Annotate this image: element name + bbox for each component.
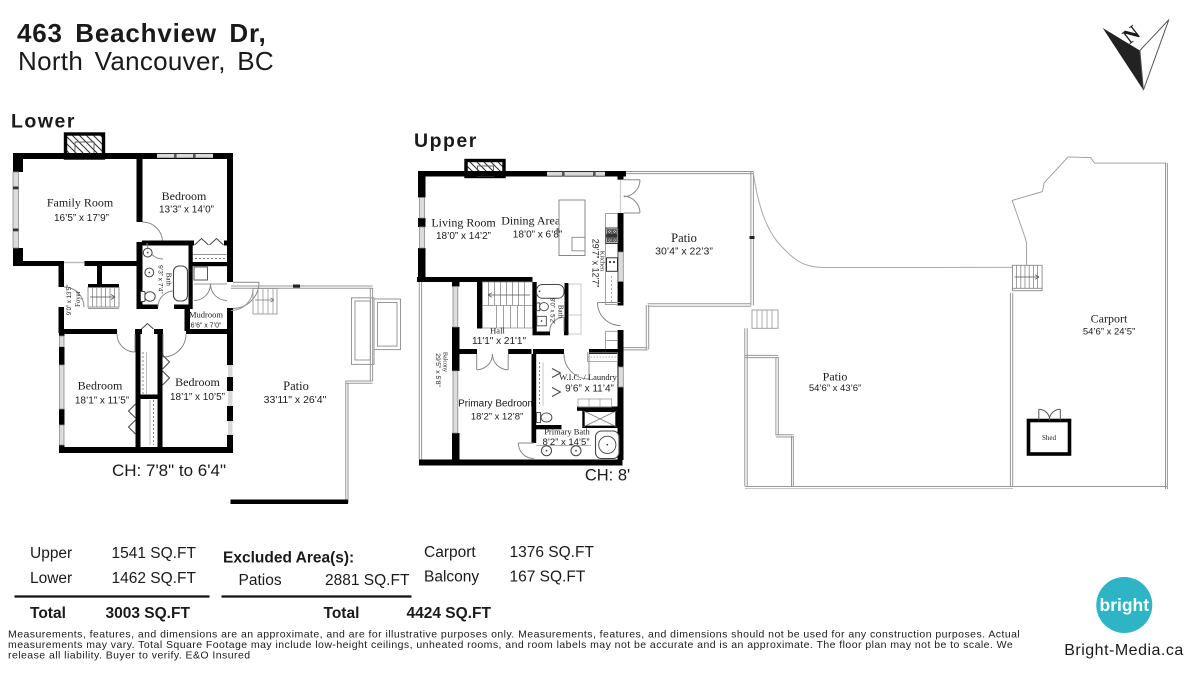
- svg-text:Bedroom: Bedroom: [78, 379, 123, 393]
- svg-text:Balcony: Balcony: [424, 569, 479, 586]
- svg-text:8’0” x 5’2”: 8’0” x 5’2”: [549, 298, 555, 324]
- svg-text:167 SQ.FT: 167 SQ.FT: [510, 569, 586, 586]
- svg-text:1462 SQ.FT: 1462 SQ.FT: [112, 570, 197, 587]
- svg-text:Upper: Upper: [414, 130, 478, 152]
- svg-text:CH: 7'8" to 6'4": CH: 7'8" to 6'4": [112, 461, 226, 480]
- svg-text:2881 SQ.FT: 2881 SQ.FT: [325, 572, 410, 589]
- svg-text:13’3” x 14’0”: 13’3” x 14’0”: [159, 205, 214, 216]
- svg-text:6’6” x 7’0”: 6’6” x 7’0”: [191, 323, 222, 330]
- svg-text:Kitchen: Kitchen: [599, 251, 606, 272]
- svg-text:Dining Area: Dining Area: [501, 214, 561, 228]
- svg-text:16’5” x 17’9”: 16’5” x 17’9”: [54, 213, 109, 224]
- svg-text:18’1” x 11’5”: 18’1” x 11’5”: [75, 396, 129, 407]
- svg-text:4424 SQ.FT: 4424 SQ.FT: [407, 605, 492, 622]
- svg-text:30’4” x 22’3”: 30’4” x 22’3”: [655, 246, 713, 258]
- svg-text:1376 SQ.FT: 1376 SQ.FT: [510, 544, 595, 561]
- svg-text:29’5” x 5’8”: 29’5” x 5’8”: [434, 353, 441, 387]
- svg-text:33'11" x 26'4": 33'11" x 26'4": [264, 394, 327, 406]
- svg-text:18’2” x 12’8”: 18’2” x 12’8”: [471, 412, 523, 423]
- svg-text:1541 SQ.FT: 1541 SQ.FT: [112, 545, 197, 562]
- svg-text:Balcony: Balcony: [442, 352, 448, 372]
- svg-text:Family Room: Family Room: [47, 196, 114, 210]
- svg-text:18’0” x 6’8”: 18’0” x 6’8”: [513, 230, 562, 241]
- svg-text:Bedroom: Bedroom: [175, 375, 220, 389]
- svg-text:18’1” x 10’5”: 18’1” x 10’5”: [170, 392, 225, 403]
- svg-text:CH: 8': CH: 8': [585, 467, 630, 485]
- svg-text:Hall: Hall: [490, 326, 505, 336]
- svg-text:9’3” x 7’4”: 9’3” x 7’4”: [156, 265, 163, 294]
- svg-text:Bath: Bath: [165, 273, 173, 287]
- svg-text:Patio: Patio: [283, 379, 309, 393]
- svg-text:Bedroom: Bedroom: [162, 189, 207, 203]
- svg-text:Bright-Media.ca: Bright-Media.ca: [1064, 642, 1184, 659]
- svg-text:Bath: Bath: [557, 305, 565, 319]
- svg-text:Upper: Upper: [30, 545, 72, 562]
- svg-text:Carport: Carport: [1091, 312, 1128, 326]
- svg-text:54’6” x 24’5”: 54’6” x 24’5”: [1083, 327, 1135, 338]
- svg-text:9’6” x 11’4”: 9’6” x 11’4”: [565, 384, 614, 395]
- svg-text:Primary Bedroom: Primary Bedroom: [458, 399, 536, 410]
- svg-text:Patio: Patio: [823, 370, 848, 384]
- svg-text:Foyer: Foyer: [75, 290, 82, 307]
- svg-text:North Vancouver, BC: North Vancouver, BC: [18, 46, 274, 76]
- svg-text:Total: Total: [30, 605, 66, 622]
- svg-text:Carport: Carport: [424, 544, 476, 561]
- svg-text:W.I.C. / Laundry: W.I.C. / Laundry: [559, 372, 617, 382]
- svg-text:3003 SQ.FT: 3003 SQ.FT: [106, 605, 191, 622]
- svg-text:Lower: Lower: [30, 570, 72, 587]
- svg-text:11'1" x 21'1": 11'1" x 21'1": [472, 336, 527, 347]
- svg-text:Patio: Patio: [671, 231, 697, 245]
- svg-text:9’0” x 13’5”: 9’0” x 13’5”: [66, 285, 73, 316]
- svg-text:Lower: Lower: [11, 111, 76, 133]
- svg-text:Primary Bath: Primary Bath: [544, 427, 590, 437]
- svg-text:Excluded Area(s):: Excluded Area(s):: [223, 550, 354, 567]
- svg-text:Mudroom: Mudroom: [189, 310, 223, 320]
- svg-text:Patios: Patios: [239, 572, 282, 589]
- svg-text:463 Beachview Dr,: 463 Beachview Dr,: [17, 18, 267, 48]
- svg-text:Shed: Shed: [1042, 434, 1057, 442]
- svg-text:Total: Total: [324, 605, 360, 622]
- svg-text:18’0” x 14’2”: 18’0” x 14’2”: [436, 231, 491, 242]
- svg-text:54’6” x 43’6”: 54’6” x 43’6”: [809, 383, 861, 394]
- svg-text:bright: bright: [1100, 595, 1150, 615]
- svg-text:8’2” x 14’5”: 8’2” x 14’5”: [543, 437, 590, 448]
- svg-text:release all liability. Buyer t: release all liability. Buyer to verify. …: [8, 650, 251, 662]
- svg-text:Living Room: Living Room: [431, 215, 496, 229]
